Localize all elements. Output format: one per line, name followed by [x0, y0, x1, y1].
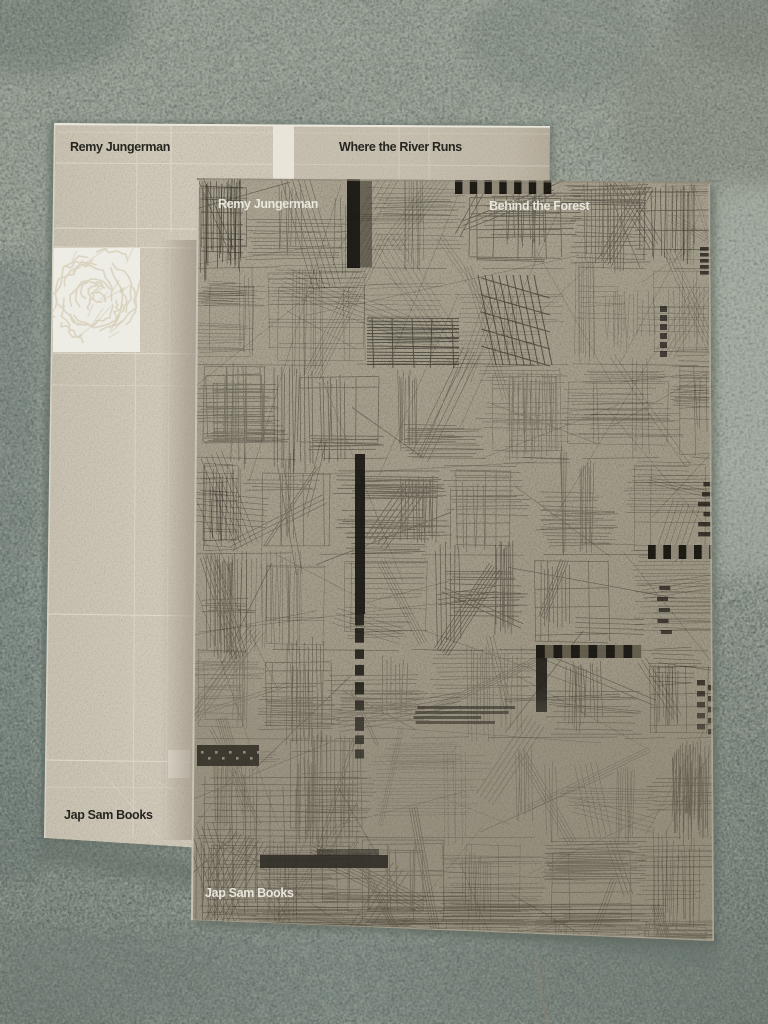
- svg-text:Jap Sam Books: Jap Sam Books: [64, 808, 153, 822]
- svg-text:Behind the Forest: Behind the Forest: [489, 199, 590, 213]
- svg-text:Remy Jungerman: Remy Jungerman: [70, 140, 170, 154]
- svg-text:Where the River Runs: Where the River Runs: [339, 140, 462, 154]
- svg-text:Remy Jungerman: Remy Jungerman: [218, 197, 318, 211]
- svg-text:Jap Sam Books: Jap Sam Books: [205, 886, 294, 900]
